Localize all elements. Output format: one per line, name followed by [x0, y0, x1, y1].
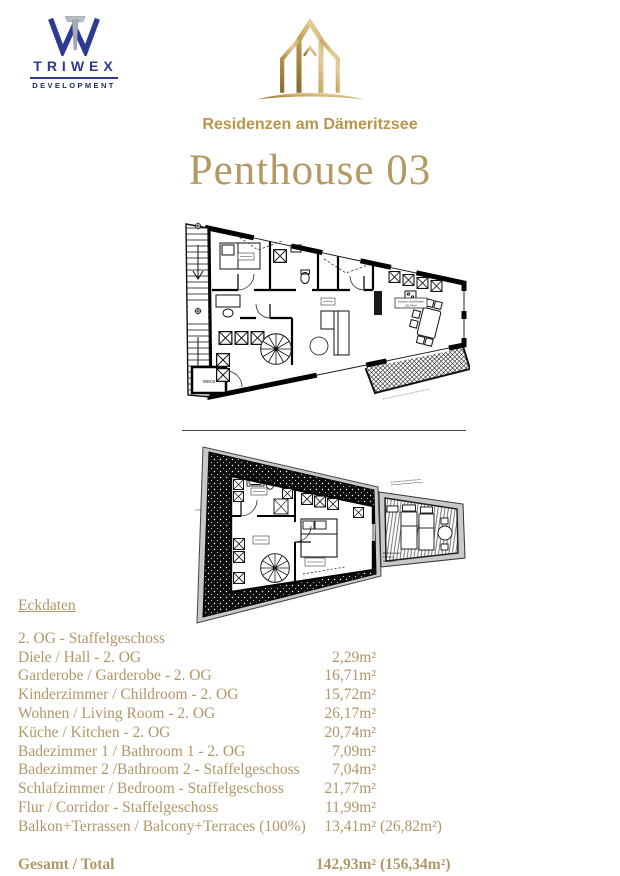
area-row-kinderzimmer: Kinderzimmer / Childroom - 2. OG15,72m²: [18, 686, 488, 705]
residence-name: Residenzen am Dämeritzsee: [0, 116, 620, 134]
area-row-kueche: Küche / Kitchen - 2. OG20,74m²: [18, 724, 488, 743]
plans-divider: [182, 430, 466, 431]
unit-label: WE03: [203, 379, 216, 384]
residence-logo-mark: [251, 2, 369, 116]
svg-text:(26,82m²): (26,82m²): [383, 559, 396, 563]
spiral-staircase: [261, 334, 292, 365]
floor-section-label: 2. OG - Staffelgeschoss: [18, 630, 488, 649]
eckdaten-heading: Eckdaten: [18, 597, 488, 616]
area-row-garderobe: Garderobe / Garderobe - 2. OG16,71m²: [18, 667, 488, 686]
kitchen-area-label: 20,74m²: [405, 303, 416, 307]
page-title: Penthouse 03: [0, 146, 620, 195]
total-row: Gesamt / Total142,93m²(156,34m²): [18, 856, 488, 875]
residence-logo: Residenzen am Dämeritzsee: [0, 2, 620, 134]
area-row-diele: Diele / Hall - 2. OG2,29m²: [18, 649, 488, 668]
area-row-schlafzimmer: Schlafzimmer / Bedroom - Staffelgeschoss…: [18, 780, 488, 799]
floorplan-level-2og: WE03: [178, 215, 470, 415]
brochure-page: TRIWEX DEVELOPMENT: [0, 0, 620, 876]
area-row-bad1: Badezimmer 1 / Bathroom 1 - 2. OG7,09m²: [18, 743, 488, 762]
area-row-balkon: Balkon+Terrassen / Balcony+Terraces (100…: [18, 818, 488, 837]
spiral-staircase: [261, 554, 290, 583]
roof-terrace: Dachterrasse 13,41m² (26,82m²): [379, 479, 465, 567]
area-row-flur: Flur / Corridor - Staffelgeschoss11,99m²: [18, 799, 488, 818]
area-row-wohnen: Wohnen / Living Room - 2. OG26,17m²: [18, 705, 488, 724]
key-data-section: Eckdaten 2. OG - Staffelgeschoss Diele /…: [18, 597, 488, 874]
area-row-bad2: Badezimmer 2 /Bathroom 2 - Staffelgescho…: [18, 761, 488, 780]
